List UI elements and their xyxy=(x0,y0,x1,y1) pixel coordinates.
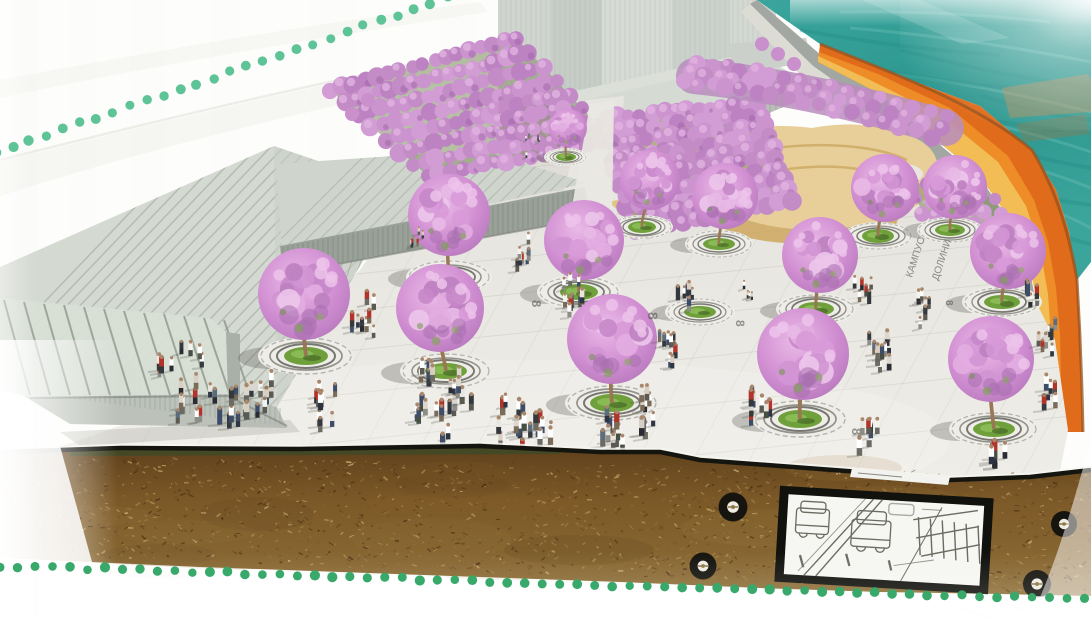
svg-text:8: 8 xyxy=(943,300,954,306)
svg-text:8: 8 xyxy=(733,320,747,327)
svg-text:8: 8 xyxy=(529,300,544,307)
svg-text:8: 8 xyxy=(645,312,661,320)
